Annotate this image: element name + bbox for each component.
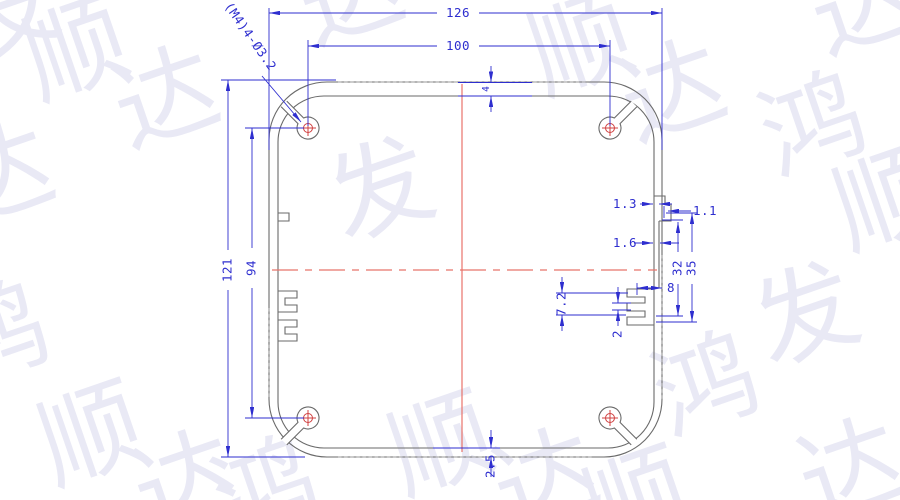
dim-hole-note: (M4)4-Ø3.2	[222, 0, 280, 73]
dim-slot-height: 7.2	[554, 292, 569, 316]
dim-hole-spacing-h: 100	[446, 38, 470, 53]
dim-step-inner: 1.1	[693, 203, 717, 218]
screw-bosses	[276, 96, 642, 450]
left-slot-lower	[278, 320, 297, 341]
technical-drawing: 126 100 121 94 (M4)4-Ø3.2 4 1.3 1.1 1.6 …	[0, 0, 900, 500]
dim-hole-spacing-v: 94	[244, 260, 259, 276]
dimension-texts: 126 100 121 94 (M4)4-Ø3.2 4 1.3 1.1 1.6 …	[220, 0, 718, 478]
dim-overall-width: 126	[446, 5, 470, 20]
dim-groove-depth-inner: 32	[670, 260, 685, 276]
right-screw-channel	[627, 289, 654, 325]
dim-step-width: 1.3	[613, 196, 637, 211]
screw-boss-bottom-left	[276, 402, 323, 449]
left-wall-step	[278, 213, 289, 221]
centerlines	[272, 84, 657, 452]
dimension-extension-lines	[221, 8, 697, 457]
dim-slot-gap: 2	[610, 330, 625, 338]
hole-center-marks	[300, 120, 618, 426]
profile-inner-contour	[278, 96, 654, 448]
screw-boss-bottom-right	[594, 402, 641, 449]
dim-rib-spacing: 8	[667, 280, 675, 295]
dim-top-wall: 4	[481, 86, 492, 92]
screw-boss-top-right	[594, 96, 641, 143]
cad-canvas: 发顺达达顺达达鸿顺达鸿发顺达鸿顺达顺鸿发达	[0, 0, 900, 500]
leader-line-holes	[262, 76, 301, 122]
dim-bottom-wall: 2.5	[483, 454, 498, 478]
dim-groove-depth-outer: 35	[684, 260, 699, 276]
left-slot-upper	[278, 291, 297, 312]
dim-overall-height: 121	[220, 258, 235, 282]
dim-side-wall: 1.6	[613, 235, 637, 250]
